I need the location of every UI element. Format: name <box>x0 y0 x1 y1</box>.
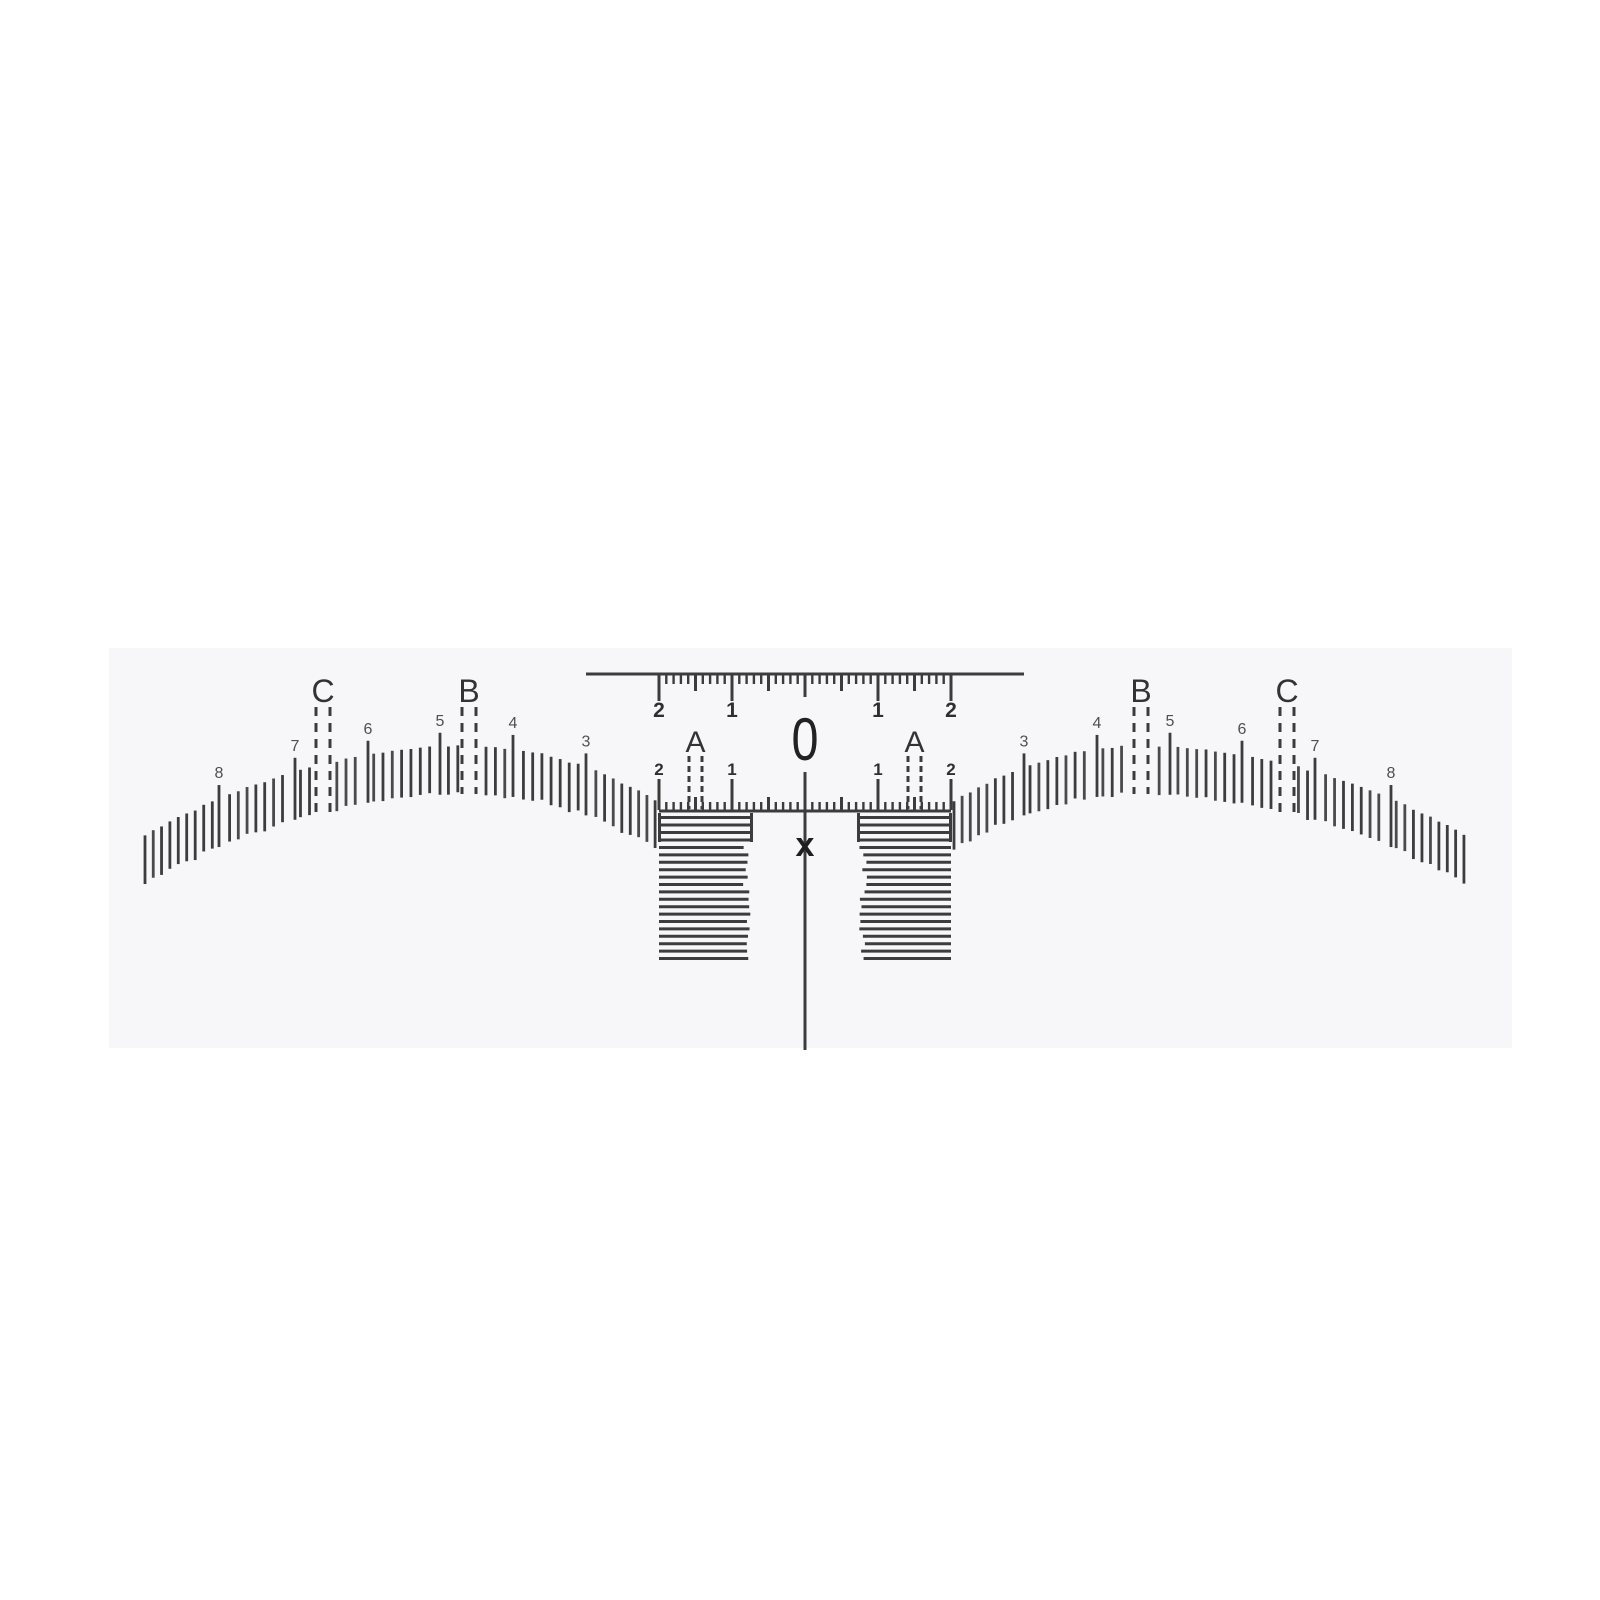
zero-mark-group: 0 <box>792 706 819 773</box>
arch-number-label: 4 <box>509 715 518 732</box>
eyebrow-ruler-sticker-diagram: 211202112AAx876543CB345678BC <box>0 0 1600 1600</box>
zero-label: 0 <box>792 706 819 773</box>
arch-guide-letter: C <box>311 673 334 709</box>
arch-number-label: 8 <box>1387 765 1396 782</box>
arch-number-label: 5 <box>436 713 445 730</box>
arch-number-label: 6 <box>1238 721 1247 738</box>
top-ruler-label: 1 <box>872 699 884 722</box>
photo-canvas: 211202112AAx876543CB345678BC <box>0 0 1600 1600</box>
arch-number-label: 7 <box>291 738 300 755</box>
arch-guide-letter: C <box>1275 673 1298 709</box>
mid-ruler-label: 2 <box>946 760 955 779</box>
a-guide-letter-left: A <box>685 726 705 759</box>
arch-guide-letter: B <box>458 673 479 709</box>
arch-number-label: 6 <box>364 721 373 738</box>
x-origin-label: x <box>796 826 815 864</box>
arch-number-label: 3 <box>1020 733 1029 750</box>
top-ruler-label: 1 <box>726 699 738 722</box>
mid-ruler-label: 2 <box>654 760 663 779</box>
top-ruler-label: 2 <box>945 699 957 722</box>
arch-number-label: 5 <box>1166 713 1175 730</box>
arch-number-label: 7 <box>1311 738 1320 755</box>
arch-number-label: 3 <box>582 733 591 750</box>
arch-number-label: 8 <box>215 765 224 782</box>
arch-guide-letter: B <box>1130 673 1151 709</box>
arch-number-label: 4 <box>1093 715 1102 732</box>
mid-ruler-label: 1 <box>873 760 882 779</box>
top-ruler-label: 2 <box>653 699 665 722</box>
mid-ruler-label: 1 <box>727 760 736 779</box>
a-guide-letter-right: A <box>904 726 924 759</box>
